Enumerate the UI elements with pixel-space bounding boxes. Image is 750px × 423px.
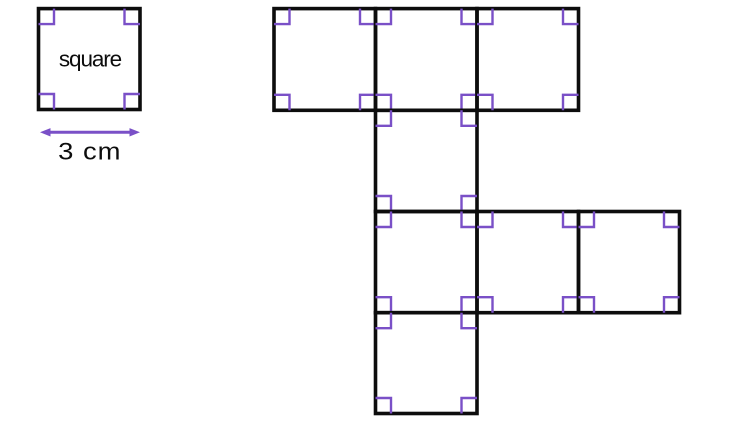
svg-text:3 cm: 3 cm: [58, 137, 121, 165]
svg-text:square: square: [59, 47, 122, 72]
